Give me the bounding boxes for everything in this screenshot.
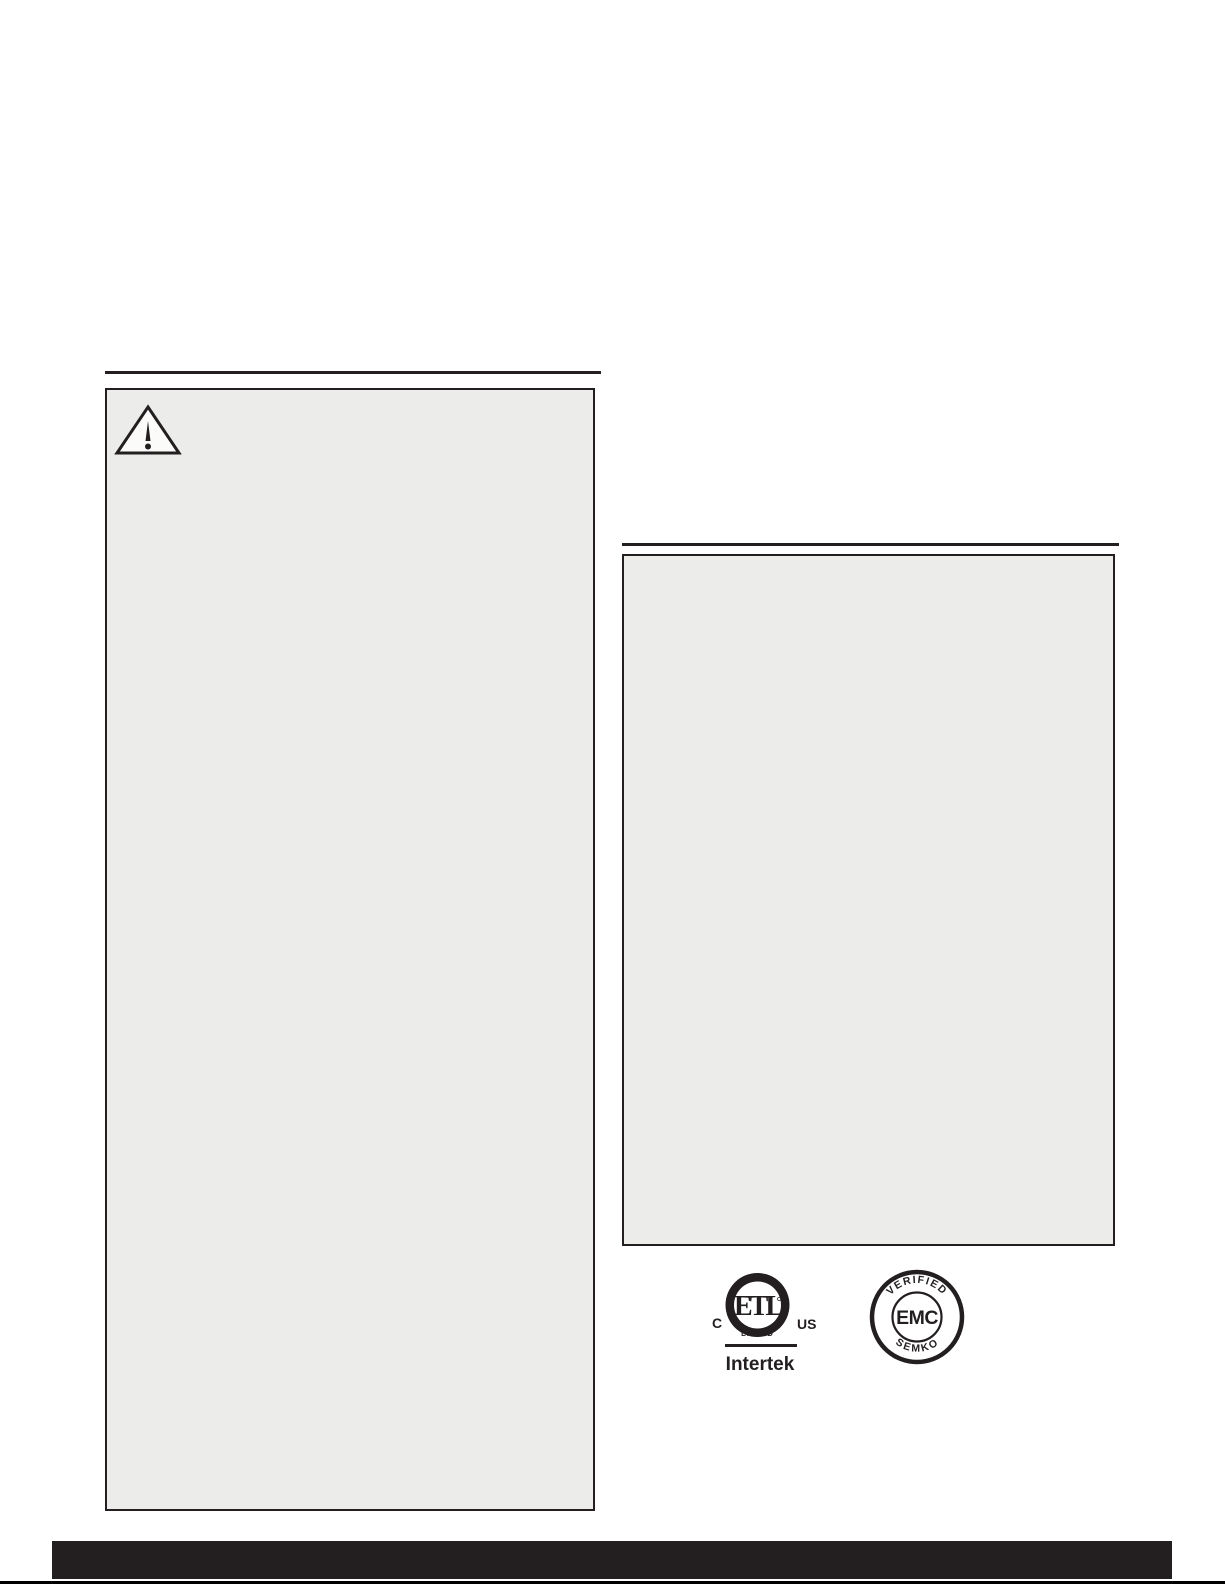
emc-center-label: EMC	[896, 1307, 938, 1329]
emc-verified-logo: VERIFIED EMC SEMKO	[864, 1266, 972, 1372]
warning-box	[105, 388, 595, 1511]
etl-trademark-label: CM	[777, 1297, 786, 1303]
warning-triangle-icon	[112, 403, 186, 461]
etl-us-label: US	[797, 1316, 816, 1332]
footer-bar	[52, 1541, 1172, 1579]
intertek-label: Intertek	[726, 1354, 795, 1375]
etl-listed-label: LISTED	[741, 1329, 774, 1338]
etl-letters: ETL	[734, 1291, 783, 1322]
info-section-rule	[622, 543, 1119, 546]
intertek-underline	[725, 1344, 797, 1347]
page-bottom-rule	[0, 1581, 1225, 1584]
emc-semko-label: SEMKO	[893, 1336, 941, 1355]
warning-section-rule	[105, 371, 601, 374]
svg-text:SEMKO: SEMKO	[893, 1336, 941, 1355]
etl-c-label: C	[712, 1315, 722, 1331]
document-page: ETL CM LISTED C US Intertek VERIFIED EMC…	[0, 0, 1225, 1585]
etl-listed-logo: ETL CM LISTED C US Intertek	[698, 1258, 832, 1380]
info-box	[622, 554, 1115, 1246]
